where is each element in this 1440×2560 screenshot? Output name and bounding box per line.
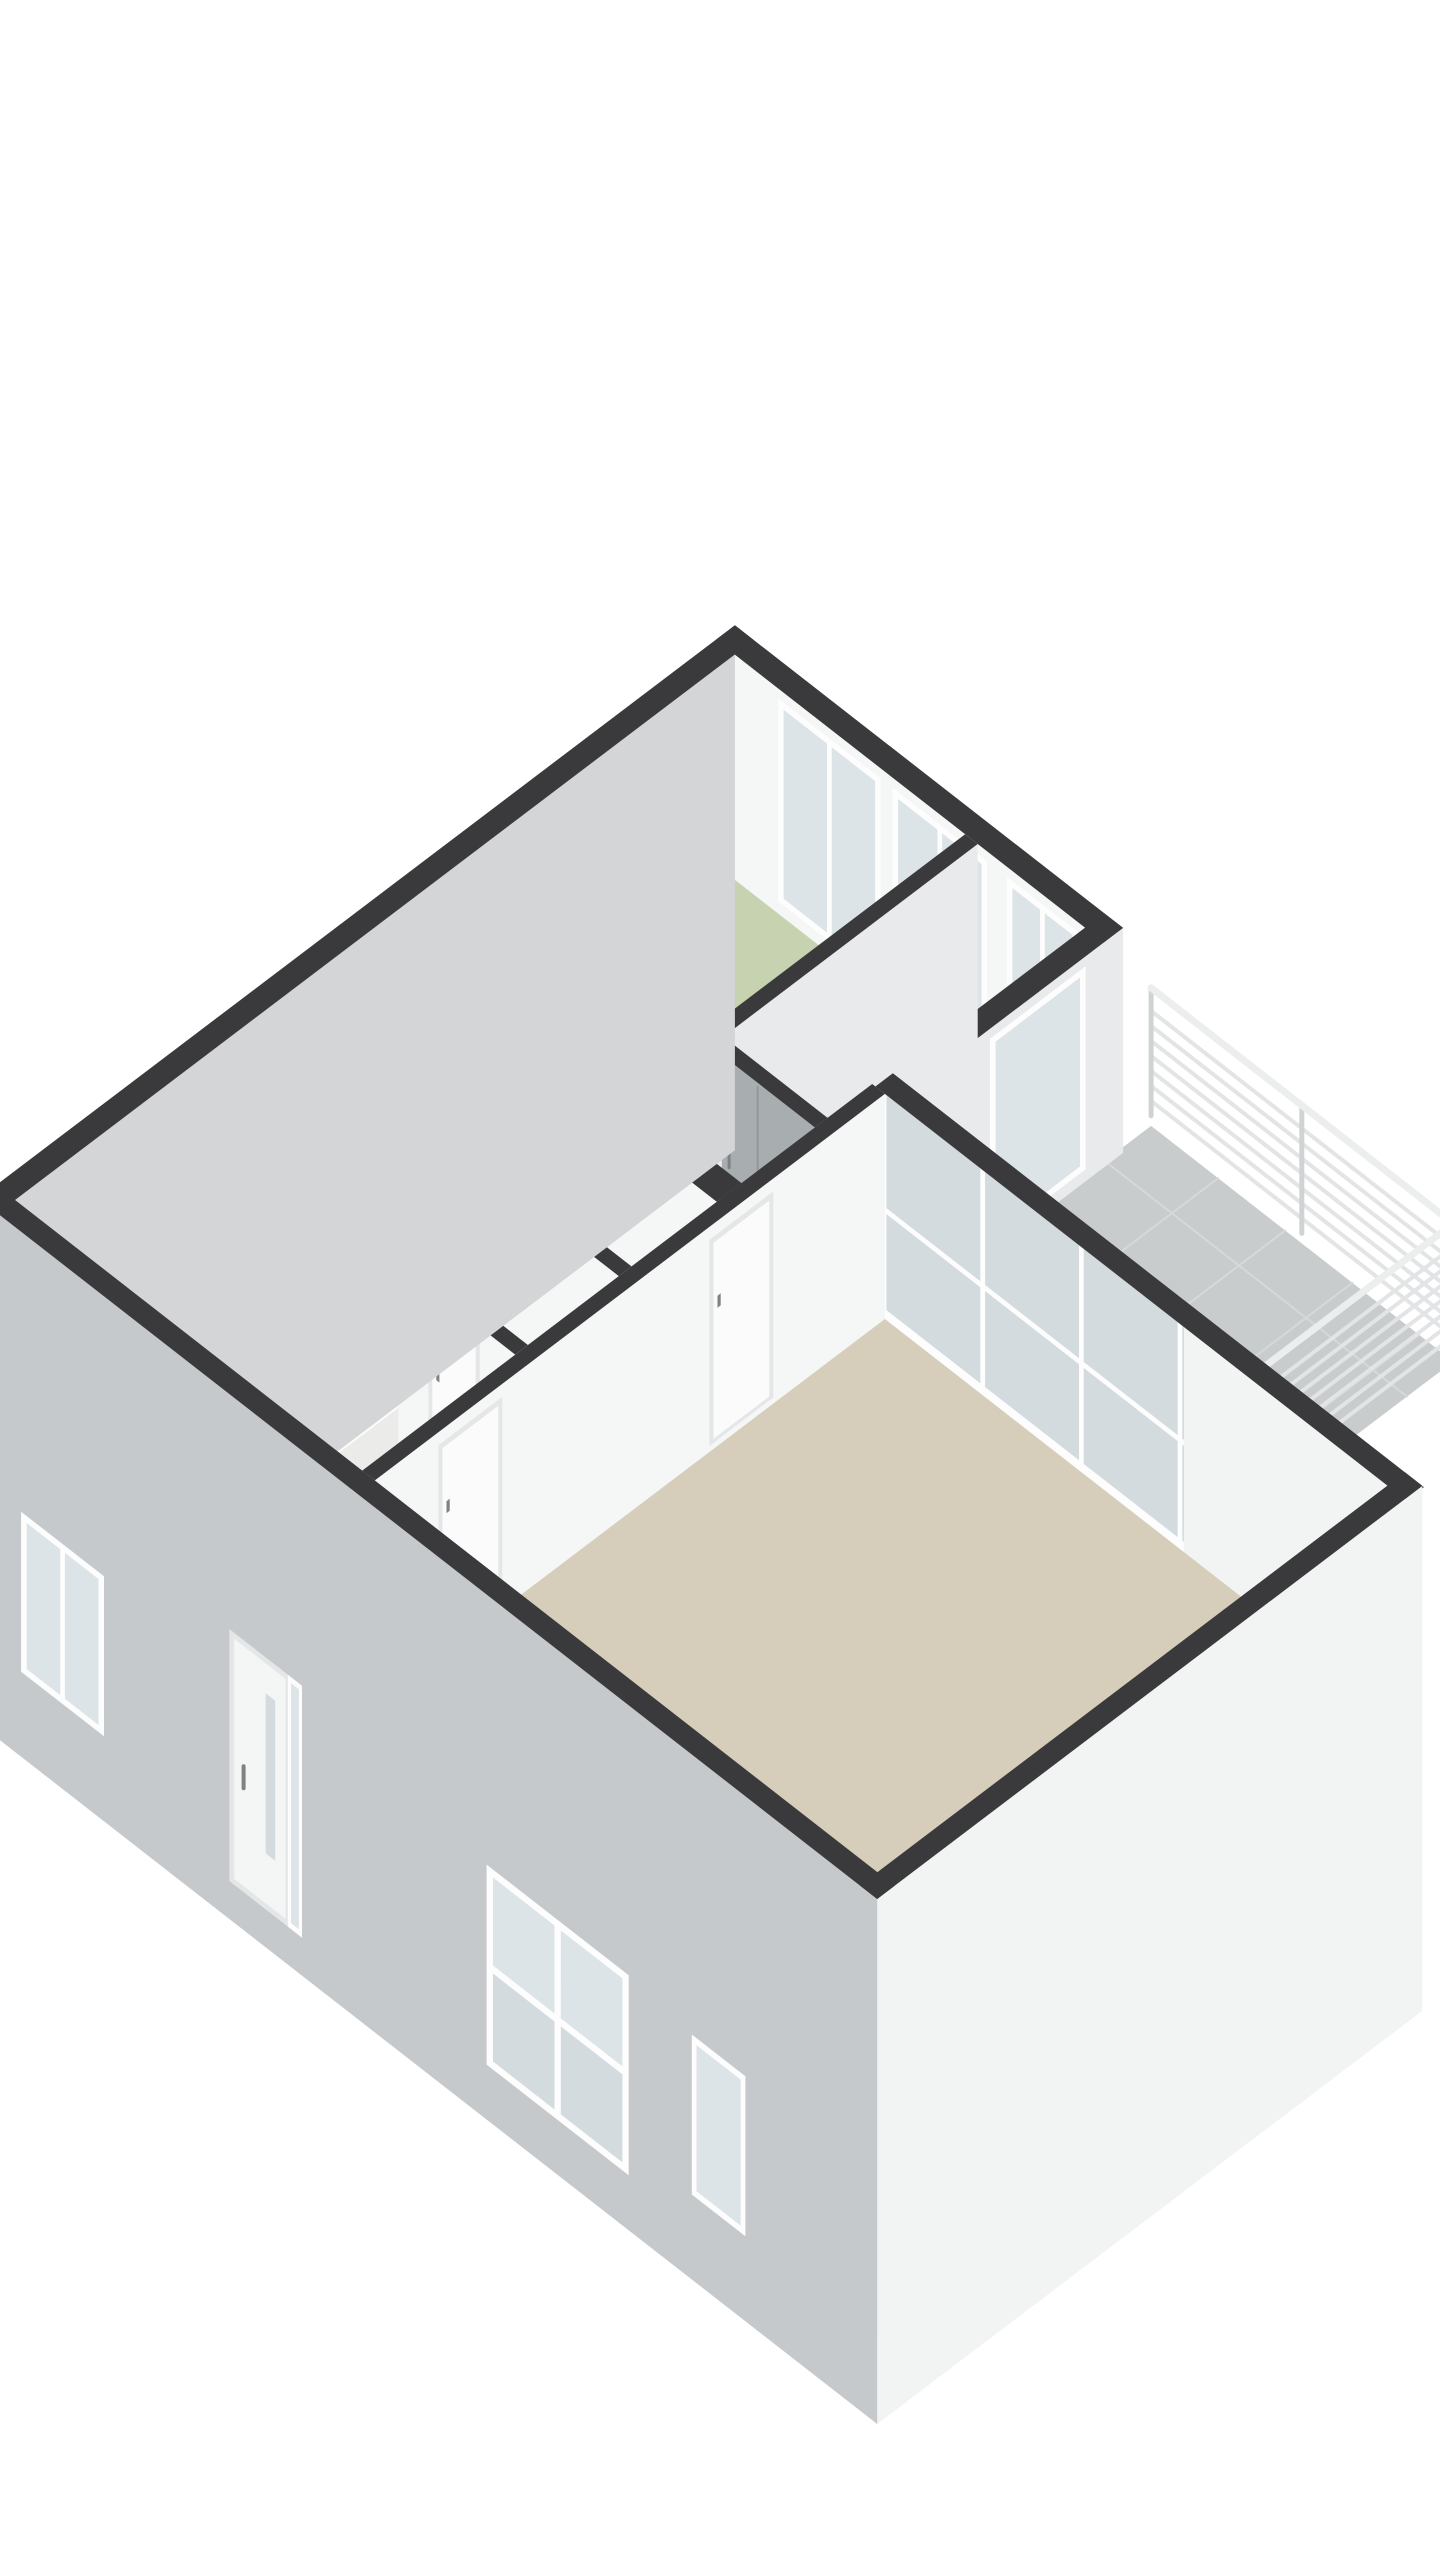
front-sidelight-glass-face: [291, 1683, 299, 1929]
front-door-glazing-face: [266, 1693, 276, 1860]
ext-wall-ne-mullion-face: [827, 742, 832, 939]
study-window-mullion-face: [60, 1547, 65, 1701]
floorplan-canvas: [0, 0, 1440, 2560]
wall-living-west-door-handle-face: [718, 1293, 721, 1307]
wall-living-west-door-handle-face: [447, 1499, 450, 1513]
floorplan-3d-view: [0, 0, 1440, 2560]
